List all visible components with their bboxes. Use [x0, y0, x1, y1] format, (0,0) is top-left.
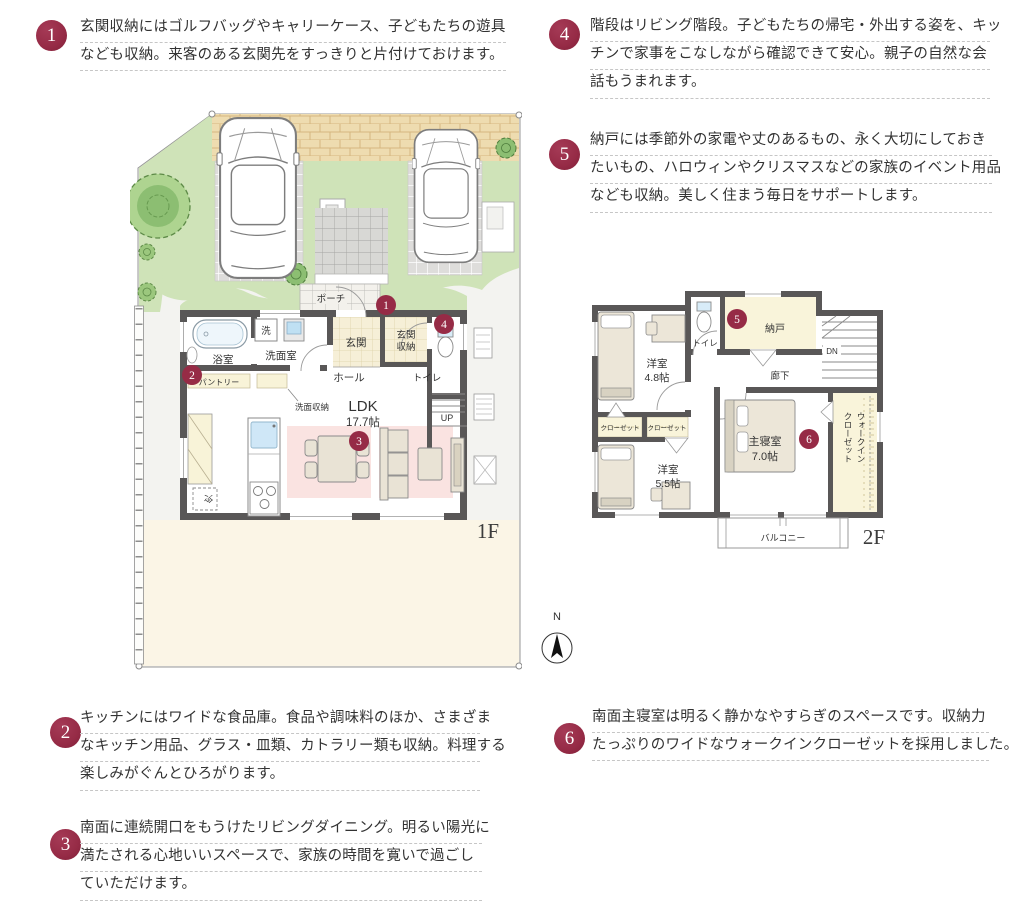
brochure-page: 1 玄関収納にはゴルフバッグやキャリーケース、子どもたちの遊具 なども収納。来客… [0, 0, 1010, 924]
kitchen-tall-cabinet [188, 414, 212, 484]
plan-badge-4: 4 [434, 314, 454, 334]
ac-outdoor-unit [474, 456, 496, 484]
site-corner-marker [209, 111, 215, 117]
entrance-storage-label-2: 収納 [396, 341, 415, 353]
compass-north-label: N [553, 611, 561, 623]
note-3: 南面に連続開口をもうけたリビングダイニング。明るい陽光に 満たされる心地いいスペ… [80, 821, 482, 906]
washroom-storage-box [257, 374, 287, 388]
note-1: 玄関収納にはゴルフバッグやキャリーケース、子どもたちの遊具 なども収納。来客のあ… [80, 20, 506, 76]
ldk-label: LDK [348, 398, 377, 415]
svg-text:5: 5 [734, 314, 740, 326]
compass: N [527, 606, 587, 676]
vanity-sink [284, 319, 304, 341]
note-5-line-1: 納戸には季節外の家電や丈のあるもの、永く大切にしておき [590, 133, 992, 156]
note-6-line-2: たっぷりのワイドなウォークインクローゼットを採用しました。 [592, 738, 989, 761]
site-corner-marker [516, 112, 522, 118]
room55-label-2: 5.5帖 [655, 477, 681, 490]
bath-drain [187, 347, 197, 363]
plan-badge-5: 5 [727, 309, 747, 329]
svg-text:3: 3 [356, 436, 362, 448]
closet-b-label: クローゼット [648, 423, 687, 432]
balcony: バルコニー [718, 518, 848, 548]
bathtub [193, 320, 247, 348]
note-2-line-2: なキッチン用品、グラス・皿類、カトラリー類も収納。料理する [80, 739, 480, 762]
ac-outdoor-unit [474, 394, 494, 420]
site-corner-marker [516, 663, 522, 669]
service-yard [482, 202, 514, 252]
washroom-storage-label: 洗面収納 [295, 402, 329, 412]
plan-badge-2: 2 [182, 365, 202, 385]
note-2-line-1: キッチンにはワイドな食品庫。食品や調味料のほか、さまざま [80, 711, 480, 734]
entrance-step [315, 274, 388, 284]
toilet-fixture-2f [697, 302, 711, 332]
bush [138, 283, 156, 301]
note-3-line-1: 南面に連続開口をもうけたリビングダイニング。明るい陽光に [80, 821, 482, 844]
washing-machine: 洗 [255, 319, 277, 341]
coffee-table [418, 448, 442, 480]
car-left [217, 118, 299, 278]
note-5-line-2: たいもの、ハロウィンやクリスマスなどの家族のイベント用品 [590, 161, 992, 184]
note-6-badge: 6 [554, 723, 585, 754]
svg-text:1: 1 [383, 300, 389, 312]
bush [139, 244, 155, 260]
kitchen-counter [248, 418, 280, 516]
meter-box [474, 328, 492, 358]
note-1-line-2: なども収納。来客のある玄関先をすっきりと片付けておけます。 [80, 48, 506, 71]
note-4: 階段はリビング階段。子どもたちの帰宅・外出する姿を、キッ チンで家事をこなしなが… [590, 19, 990, 104]
floorplan-2f: DN [580, 282, 900, 562]
front-yard [139, 520, 519, 666]
washroom-label: 洗面室 [265, 349, 297, 362]
tree-small-topright [496, 138, 516, 158]
note-2: キッチンにはワイドな食品庫。食品や調味料のほか、さまざま なキッチン用品、グラス… [80, 711, 480, 796]
svg-text:冷: 冷 [203, 494, 214, 503]
note-5: 納戸には季節外の家電や丈のあるもの、永く大切にしておき たいもの、ハロウィンやク… [590, 133, 992, 218]
svg-text:2: 2 [189, 370, 195, 382]
room55-label-1: 洋室 [658, 463, 679, 476]
note-4-line-2: チンで家事をこなしながら確認できて安心。親子の自然な会 [590, 47, 990, 70]
car-right [412, 130, 480, 263]
walk-in-closet [833, 393, 877, 513]
room48-label-1: 洋室 [647, 357, 668, 370]
up-label: UP [441, 413, 454, 423]
toilet-label-2f: トイレ [692, 338, 718, 348]
svg-text:4: 4 [441, 319, 447, 331]
master-label-2: 7.0帖 [752, 450, 778, 463]
storage-label: 納戸 [765, 322, 785, 335]
bath-label: 浴室 [213, 353, 234, 366]
note-3-badge: 3 [50, 829, 81, 860]
plan-badge-3: 3 [349, 431, 369, 451]
pantry-label: パントリー [199, 378, 239, 387]
floorplan-1f: ポーチ [130, 108, 522, 670]
sofa [380, 428, 408, 500]
entrance-storage-label-1: 玄関 [396, 329, 415, 341]
note-3-line-3: ていただけます。 [80, 877, 482, 900]
plan-badge-1: 1 [376, 295, 396, 315]
corridor-label: 廊下 [770, 370, 789, 382]
plan-badge-6: 6 [799, 429, 819, 449]
room48-label-2: 4.8帖 [644, 371, 670, 384]
tree-large [130, 174, 190, 238]
refrigerator: 冷 [193, 488, 217, 510]
note-4-line-1: 階段はリビング階段。子どもたちの帰宅・外出する姿を、キッ [590, 19, 990, 42]
svg-text:洗: 洗 [261, 325, 271, 337]
floor-label-1f: 1F [477, 519, 499, 543]
note-4-line-3: 話もうまれます。 [590, 75, 990, 98]
dn-label: DN [826, 347, 838, 356]
floor-label-2f: 2F [863, 525, 885, 549]
note-5-badge: 5 [549, 139, 580, 170]
note-4-badge: 4 [549, 19, 580, 50]
closet-a-label: クローゼット [601, 423, 640, 432]
master-label-1: 主寝室 [749, 434, 782, 448]
desk-room48 [646, 315, 685, 342]
note-1-line-1: 玄関収納にはゴルフバッグやキャリーケース、子どもたちの遊具 [80, 20, 506, 43]
note-2-badge: 2 [50, 717, 81, 748]
note-6-line-1: 南面主寝室は明るく静かなやすらぎのスペースです。収納力 [592, 710, 989, 733]
balcony-label: バルコニー [761, 533, 806, 543]
bed-room48 [598, 312, 634, 400]
wic-label-1: ウォークイン [856, 412, 866, 463]
entrance-label: 玄関 [346, 336, 367, 349]
stove [250, 482, 278, 514]
hall-label: ホール [333, 372, 365, 384]
note-2-line-3: 楽しみがぐんとひろがります。 [80, 767, 480, 790]
ldk-size-label: 17.7帖 [346, 415, 380, 429]
boundary-fence [135, 306, 144, 664]
approach-walkway [315, 208, 388, 274]
note-1-badge: 1 [36, 20, 67, 51]
porch-label: ポーチ [317, 294, 346, 305]
note-6: 南面主寝室は明るく静かなやすらぎのスペースです。収納力 たっぷりのワイドなウォー… [592, 710, 989, 766]
note-5-line-3: なども収納。美しく住まう毎日をサポートします。 [590, 189, 992, 212]
toilet-label: トイレ [413, 373, 442, 384]
note-3-line-2: 満たされる心地いいスペースで、家族の時間を寛いで過ごし [80, 849, 482, 872]
tv-board [451, 438, 464, 492]
svg-text:6: 6 [806, 434, 812, 446]
wic-label-2: クローゼット [843, 412, 853, 463]
bed-room55 [598, 445, 634, 509]
